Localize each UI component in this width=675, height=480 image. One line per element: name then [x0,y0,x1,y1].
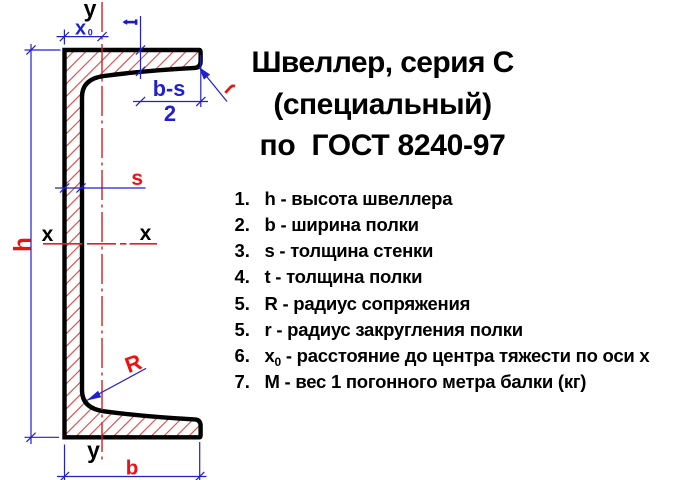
svg-text:y: y [84,0,97,22]
svg-text:h: h [10,237,37,252]
svg-text:s: s [131,167,143,190]
svg-text:b: b [126,457,139,480]
svg-text:2: 2 [164,101,176,126]
svg-text:x: x [140,222,152,245]
svg-text:b-s: b-s [153,76,186,101]
svg-text:R: R [122,349,146,378]
svg-text:y: y [87,437,100,463]
svg-text:x: x [42,223,54,246]
svg-text:0: 0 [88,28,93,38]
